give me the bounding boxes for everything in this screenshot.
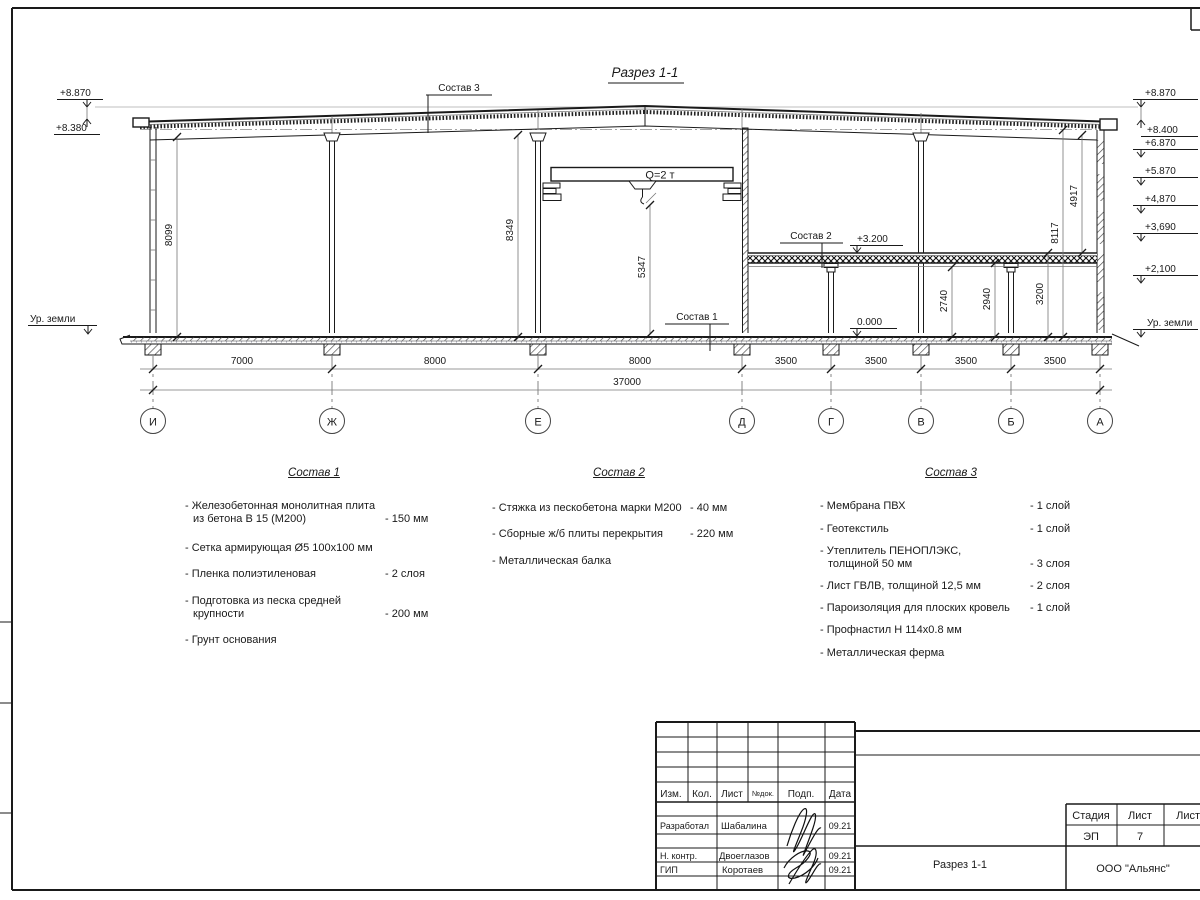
floor-level-value: 0.000 <box>857 317 882 328</box>
axis-d: Д <box>738 417 746 429</box>
axis-a: А <box>1096 417 1104 429</box>
list-item: - Железобетонная монолитная плита из бет… <box>185 500 443 527</box>
drawing-sheet: Разрез 1-1 <box>0 0 1200 900</box>
list-item: - Металлическая балка <box>492 555 746 568</box>
tb-role-ncontrol: Н. контр. <box>660 851 697 861</box>
sostav1-title: Состав 1 <box>185 466 443 480</box>
title-block: Изм. Кол. Лист №док. Подп. Дата Разработ… <box>656 722 1200 890</box>
elev-right-5870: +5.870 <box>1133 166 1198 185</box>
callout-sostav3: Состав 3 <box>426 83 492 133</box>
elev-right-3690-value: +3,690 <box>1145 222 1176 233</box>
roof-truss <box>133 106 1117 140</box>
elev-right-8870-value: +8.870 <box>1145 88 1176 99</box>
mark-mezzanine-level: +3.200 <box>850 234 903 253</box>
foundation-pads <box>145 344 1108 355</box>
elev-right-2100-value: +2,100 <box>1145 264 1176 275</box>
list-item: - Пленка полиэтиленовая - 2 слоя <box>185 568 443 581</box>
dim-5347: 5347 <box>637 201 654 338</box>
elev-right-2100: +2,100 <box>1133 264 1198 283</box>
tb-name-ncontrol: Двоеглазов <box>719 851 770 862</box>
list-item: - Металлическая ферма <box>820 647 1082 660</box>
span-3500d: 3500 <box>1044 356 1067 367</box>
dim-chain-spans: 7000 8000 8000 3500 3500 3500 3500 <box>140 356 1112 373</box>
tb-role-gip: ГИП <box>660 865 678 875</box>
span-3500b: 3500 <box>865 356 888 367</box>
tb-header-data: Дата <box>829 789 852 800</box>
dim-8349: 8349 <box>505 131 522 341</box>
list-item: - Сетка армирующая Ø5 100х100 мм <box>185 542 443 555</box>
mezzanine-column-b <box>1004 264 1018 338</box>
sheet-frame <box>0 8 1200 890</box>
dim-5347-value: 5347 <box>637 255 648 278</box>
tb-sheet-number: 7 <box>1137 831 1143 843</box>
list-item: - Профнастил Н 114х0.8 мм <box>820 624 1082 637</box>
dim-chain-total: 37000 <box>140 377 1112 394</box>
elev-right-6870-value: +6.870 <box>1145 138 1176 149</box>
dim-2940-value: 2940 <box>982 287 993 310</box>
total-dim-37000: 37000 <box>613 377 641 388</box>
elev-right-8400-value: +8.400 <box>1147 125 1178 136</box>
tb-date-ncontrol: 09.21 <box>829 851 852 861</box>
elev-right-4870-value: +4,870 <box>1145 194 1176 205</box>
tb-header-list: Лист <box>721 789 743 800</box>
list-item: - Мембрана ПВХ - 1 слой <box>820 500 1082 513</box>
dim-4917: 4917 <box>1069 131 1086 257</box>
dim-8349-value: 8349 <box>505 218 516 241</box>
tb-name-developer: Шабалина <box>721 821 768 832</box>
axis-zh: Ж <box>327 417 337 429</box>
elev-right-3690: +3,690 <box>1133 222 1198 241</box>
tb-doc-title: Разрез 1-1 <box>933 859 987 871</box>
left-wall <box>150 127 156 337</box>
dim-3200-value: 3200 <box>1035 282 1046 305</box>
dim-8099-value: 8099 <box>164 223 175 246</box>
elev-right-6870: +6.870 <box>1133 138 1198 157</box>
tb-role-developer: Разработал <box>660 821 709 831</box>
elev-right-8400: +8.400 <box>1137 107 1198 137</box>
tb-company: ООО "Альянс" <box>1096 863 1170 875</box>
dim-2740: 2740 <box>939 263 956 341</box>
mezzanine-column-g <box>824 264 838 338</box>
section-drawing: Разрез 1-1 <box>0 0 1200 900</box>
elev-right-4870: +4,870 <box>1133 194 1198 213</box>
axis-v: В <box>917 417 924 429</box>
crane-end-truck-right <box>723 183 741 201</box>
tb-date-gip: 09.21 <box>829 865 852 875</box>
elev-right-5870-value: +5.870 <box>1145 166 1176 177</box>
sostav2-title: Состав 2 <box>492 466 746 480</box>
dim-8117: 8117 <box>1050 126 1067 341</box>
elev-left-top-value: +8.870 <box>60 88 91 99</box>
mezzanine-level-value: +3.200 <box>857 234 888 245</box>
list-item: - Утеплитель ПЕНОПЛЭКС, толщиной 50 мм -… <box>820 545 1082 572</box>
crane-capacity-label: Q=2 т <box>645 170 674 182</box>
tb-sheets-label: Листов <box>1176 810 1200 822</box>
tb-header-kol: Кол. <box>692 789 712 800</box>
crane-hook <box>629 181 656 204</box>
elev-left-top: +8.870 <box>57 88 103 107</box>
sostav2-list: Состав 2 - Стяжка из пескобетона марки М… <box>492 466 746 568</box>
axis-bubbles: И Ж Е Д Г В Б А <box>141 409 1113 434</box>
mezzanine-slab <box>748 253 1097 267</box>
tb-stage-value: ЭП <box>1083 831 1099 843</box>
sostav3-title: Состав 3 <box>820 466 1082 480</box>
span-8000a: 8000 <box>424 356 447 367</box>
sostav3-list: Состав 3 - Мембрана ПВХ - 1 слой - Геоте… <box>820 466 1082 660</box>
dim-2740-value: 2740 <box>939 289 950 312</box>
tb-header-podp: Подп. <box>788 789 815 800</box>
tb-date-developer: 09.21 <box>829 821 852 831</box>
dim-4917-value: 4917 <box>1069 184 1080 207</box>
crane-bridge: Q=2 т <box>543 168 741 205</box>
dim-2940: 2940 <box>982 259 999 341</box>
tb-name-gip: Коротаев <box>722 865 763 876</box>
list-item: - Стяжка из пескобетона марки М200 - 40 … <box>492 502 746 515</box>
axis-b: Б <box>1007 417 1014 429</box>
span-8000b: 8000 <box>629 356 652 367</box>
dim-8099: 8099 <box>164 133 181 341</box>
axis-e: Е <box>534 417 541 429</box>
callout-sostav2-label: Состав 2 <box>790 231 832 242</box>
right-wall <box>1097 130 1104 337</box>
elev-right-ground: Ур. земли <box>1133 318 1198 337</box>
tb-header-izm: Изм. <box>660 789 681 800</box>
list-item: - Грунт основания <box>185 634 443 647</box>
list-item: - Сборные ж/б плиты перекрытия - 220 мм <box>492 528 746 541</box>
list-item: - Подготовка из песка средней крупности … <box>185 595 443 622</box>
callout-sostav1: Состав 1 <box>665 312 729 351</box>
tb-header-ndok: №док. <box>752 789 774 798</box>
callout-sostav1-label: Состав 1 <box>676 312 718 323</box>
span-3500a: 3500 <box>775 356 798 367</box>
elev-left-ground-label: Ур. земли <box>30 314 75 325</box>
floor-slab <box>120 333 1139 346</box>
axis-g: Г <box>828 417 834 429</box>
elev-left-parapet-value: +8.380 <box>56 123 87 134</box>
tb-sheet-label: Лист <box>1128 810 1152 822</box>
crane-end-truck-left <box>543 183 561 201</box>
left-parapet <box>133 118 149 127</box>
elev-left-parapet: +8.380 <box>54 107 100 135</box>
callout-sostav3-label: Состав 3 <box>438 83 480 94</box>
elev-right-8870: +8.870 <box>1133 88 1198 107</box>
dim-8117-value: 8117 <box>1050 222 1061 244</box>
corner-box <box>1191 8 1200 30</box>
right-parapet <box>1100 119 1117 130</box>
signature-gip <box>784 849 821 884</box>
axis-i: И <box>149 417 157 429</box>
columns <box>324 133 1018 337</box>
list-item: - Лист ГВЛВ, толщиной 12,5 мм - 2 слоя <box>820 580 1082 593</box>
axis-d-wall <box>743 128 749 337</box>
tb-stage-label: Стадия <box>1072 810 1110 822</box>
elev-left-ground: Ур. земли <box>28 314 97 334</box>
span-7000: 7000 <box>231 356 254 367</box>
list-item: - Пароизоляция для плоских кровель - 1 с… <box>820 602 1082 615</box>
list-item: - Геотекстиль - 1 слой <box>820 523 1082 536</box>
section-title: Разрез 1-1 <box>612 65 679 80</box>
span-3500c: 3500 <box>955 356 978 367</box>
sostav1-list: Состав 1 - Железобетонная монолитная пли… <box>185 466 443 648</box>
elev-right-ground-label: Ур. земли <box>1147 318 1192 329</box>
